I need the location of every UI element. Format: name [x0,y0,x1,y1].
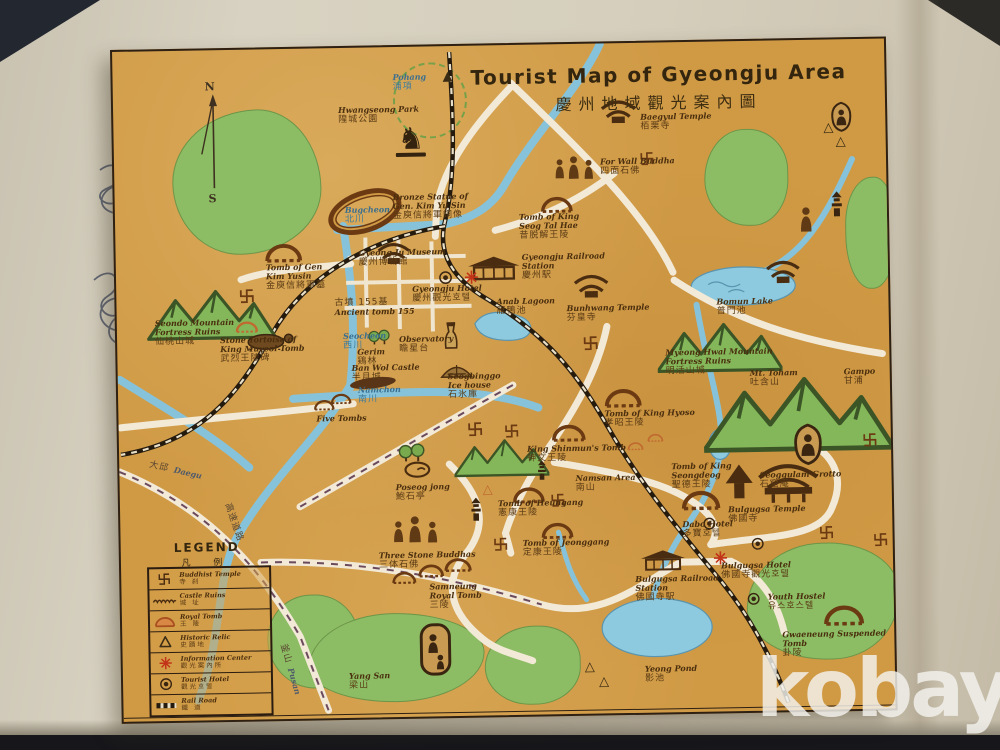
manji-temple-icon [504,423,520,439]
manji-temple-icon [818,524,834,540]
poi-seokguram-grotto: Seoggulam Grotto石窟庵 [759,469,841,489]
royal-tomb-icon [551,422,587,444]
legend-row: Castle Ruins城 址 [149,587,269,610]
poi-observatory: Observatory瞻星台 [399,334,453,354]
tourist-hotel-icon [747,592,761,606]
buddha-relief-icon [417,622,454,677]
buddha-statue-icon [567,152,581,184]
poi-yangsan: Yang San梁山 [349,671,391,691]
poi-youth-hostel: Youth Hostel유스호스텔 [768,592,826,612]
tourist-hotel-icon [151,677,181,692]
buddha-statue-icon [799,206,813,234]
poi-anab-lagoon: Anab Lagoon雁鴨池 [496,296,555,316]
poi-namsan-area: Namsan Area南山 [575,473,635,493]
temple-icon [764,256,802,285]
railroad-icon [151,702,181,708]
royal-tomb-icon [647,432,664,442]
poi-five-tombs: Five Tombs [316,414,366,424]
poi-tomb-gen-kim-yusin: Tomb of Gen Kim Yusin金庾信將軍墓 [266,262,326,291]
equestrian-statue-icon: ♞ [397,125,424,155]
historic-relic-triangle-icon: △ [823,121,833,134]
legend-box: Buddhist Temple寺 刹 Castle Ruins城 址 Royal… [147,565,274,717]
royal-tomb-icon [235,319,259,333]
seokguram-grotto-icon [791,423,826,468]
legend-row: Buddhist Temple寺 刹 [149,567,269,589]
poi-seogbinggo: Seogbinggo Ice house石氷庫 [448,371,501,400]
buddha-statue-icon [583,156,594,184]
compass-needle-icon [197,92,229,193]
poi-ancient-tomb-155: 古墳 155基Ancient tomb 155 [334,297,414,317]
poi-poseokjong: Poseog jong鮑石亭 [396,482,450,502]
page-crease-shadow [895,0,940,750]
poi-baegyul-temple: Baegyul Temple栢栗寺 [640,112,712,132]
poi-bugcheon: Bugcheon北川 [345,205,390,225]
poi-bulguksa-temple: Bulgugsa Temple佛國寺 [728,504,806,524]
poi-banwol-castle: Ban Wol Castle半月城 [352,363,420,383]
manji-temple-icon [467,421,484,438]
map-title: Tourist Map of Gyeongju Area 慶州地域觀光案內圖 [442,59,875,118]
poi-bronze-statue: Bronze Statue of Gen. Kim Yu Sin金庾信將軍銅像 [393,192,469,221]
royal-tomb-icon [603,386,643,410]
manji-temple-icon [238,288,255,305]
royal-tomb-icon [330,392,352,405]
poi-tomb-king-seongdeog: Tomb of King Seongdeog聖德王陵 [671,461,732,490]
tourist-map-sheet: Tourist Map of Gyeongju Area 慶州地域觀光案內圖 N… [110,36,898,723]
poi-three-stone-buddhas: Three Stone Buddhas三体石佛 [379,550,476,571]
poi-gyeongju-hotel: Gyeongju Hotel慶州觀光호텔 [412,284,482,304]
poi-namchon: Namchon南川 [358,385,401,405]
legend-row: Royal Tomb王 陵 [150,608,270,631]
poi-gyeongju-museum: Gyeong Ju Museum慶州博物館 [359,247,446,268]
buddha-statue-icon [426,518,438,546]
poi-tomb-king-hyoso: Tomb of King Hyoso孝昭王陵 [604,408,695,429]
poi-seog-tal-hae-tomb: Tomb of King Seog Tal Hae昔脱解王陵 [519,212,580,241]
compass-south-label: S [208,192,216,205]
royal-tomb-icon [391,570,417,585]
manji-temple-icon [862,432,878,448]
historic-relic-triangle-icon: △ [483,483,493,496]
legend-row: Rail Road鐵 道 [151,692,271,715]
legend-row: Tourist Hotel觀光호텔 [151,671,271,694]
poi-bomun-lake: Bomun Lake普門池 [716,296,773,316]
manji-temple-icon [873,531,889,547]
poi-hwangseong-park: Hwangseong Park隍城公園 [338,105,419,125]
royal-tomb-icon [822,602,866,628]
book-cover-corner [0,0,100,62]
poi-gampo: Gampo甘浦 [844,367,876,387]
historic-relic-triangle-icon: △ [836,135,846,148]
poi-king-shinmun-tomb: King Shinmun's Tomb神文王陵 [527,443,626,464]
poi-tomb-jeonggang: Tomb of Jeonggang定康王陵 [523,537,610,558]
tourist-hotel-icon [751,537,765,551]
poi-yeong-pond: Yeong Pond影池 [645,664,698,684]
poi-bulguksa-station: Bulgugsa Railroad Station佛國寺駅 [635,573,719,602]
historic-relic-triangle-icon [150,635,180,650]
poi-tomb-heungang: Tomb of Heungang憲康王陵 [498,498,584,519]
poi-stone-tortoise: Stone Tortoise of King Muyeol Tomb武烈王陵碑 [220,335,305,364]
castle-ruins-icon [150,595,180,605]
poi-bunhwang-temple: Bunhwang Temple芬皇寺 [567,303,650,323]
manji-temple-icon [149,572,179,587]
buddha-statue-icon [407,513,423,547]
legend-row: Information Center觀光案內所 [151,650,271,673]
poi-samneung: Samneung Royal Tomb三陵 [429,582,482,611]
railroad-station-icon [639,548,687,573]
pagoda-icon [829,189,846,219]
poi-bulguksa-hotel: Bulgugsa Hotel佛國寺觀光호텔 [721,560,791,580]
buddha-statue-icon [392,519,404,545]
historic-relic-triangle-icon: △ [585,661,595,674]
manji-temple-icon [493,536,509,552]
royal-tomb-icon [680,487,722,512]
manji-temple-icon [582,335,599,352]
compass-north-label: N [205,80,215,93]
buddha-statue-icon [554,156,565,182]
poseokjong-curl-icon [403,460,431,478]
pagoda-icon [468,498,484,522]
legend-row: Historic Relic史蹟地 [150,629,270,652]
statue-base [396,153,426,158]
poi-pohang: Pohang浦項 [392,72,426,92]
poi-mt-toham: Mt. Toham吐含山 [750,368,798,388]
watermark-text: kobay [756,642,1000,735]
historic-relic-triangle-icon: △ [599,675,609,688]
information-center-icon [151,656,181,671]
royal-tomb-icon [150,614,180,628]
poi-dabo-hotel: Dabo Hotel多寶호텔 [682,519,733,539]
poi-gyeongju-station: Gyeongju Railroad Station慶州駅 [522,251,606,280]
poi-for-wall-buddha: For Wall Buddha四面石佛 [600,156,675,176]
royal-tomb-icon [627,441,644,451]
table-edge [0,735,1000,750]
